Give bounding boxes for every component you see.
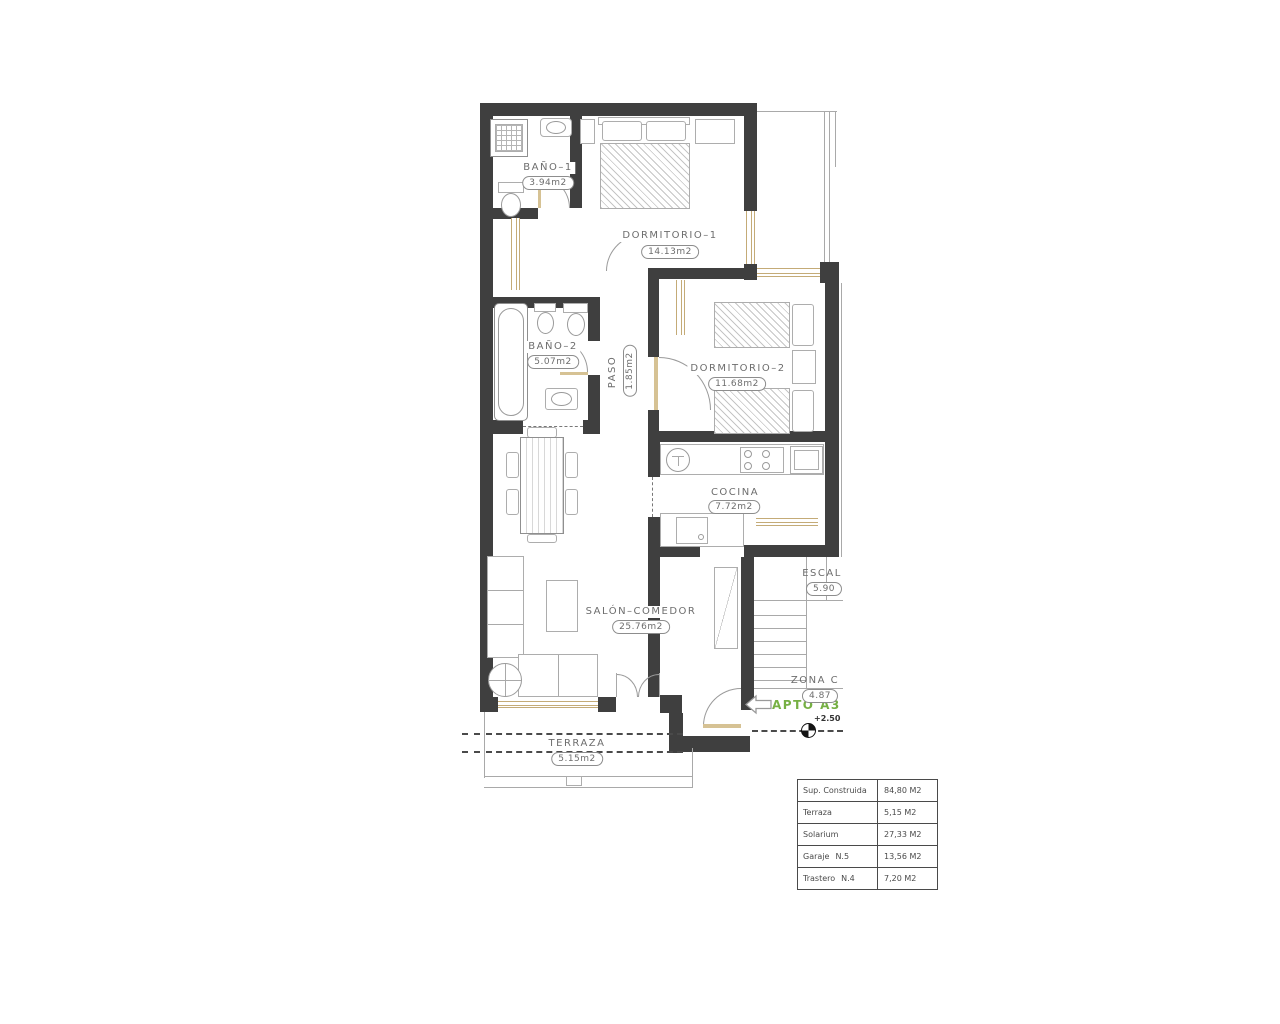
row-value: 84,80 M2 [878, 786, 937, 795]
room-label-zona-comun: ZONA C [788, 675, 842, 687]
level-marker-icon [801, 723, 816, 738]
row-label: Solarium [803, 830, 838, 839]
chair [506, 489, 519, 515]
table-row: Sup. Construida 84,80 M2 [798, 780, 937, 802]
bidet [534, 303, 556, 312]
dashed-boundary [652, 477, 653, 517]
dishwasher-dial [698, 534, 704, 540]
sink-bowl [551, 392, 572, 406]
table-row: TrasteroN.4 7,20 M2 [798, 868, 937, 889]
door-leaf [659, 673, 660, 697]
apto-arrow-icon [745, 694, 772, 715]
kitchen-hatch-window [756, 518, 818, 526]
area-badge-cocina: 7.72m2 [708, 500, 760, 514]
table-row: GarajeN.5 13,56 M2 [798, 846, 937, 868]
window [757, 268, 820, 277]
area-badge-salon: 25.76m2 [612, 620, 670, 634]
context-line [824, 112, 825, 262]
nightstand [792, 350, 816, 384]
sofa-cushion-line [488, 624, 523, 625]
wall-segment [480, 103, 757, 116]
area-badge-dormitorio-2: 11.68m2 [708, 377, 766, 391]
terrace-railing [484, 712, 485, 778]
single-bed [714, 302, 790, 348]
coffee-table [546, 580, 578, 632]
wall-segment [648, 442, 660, 477]
sofa [487, 556, 524, 658]
pillow [602, 121, 642, 141]
window [746, 211, 755, 264]
stair-tread [754, 628, 806, 629]
room-label-paso: PASO [607, 353, 619, 391]
room-label-banyo-2: BAÑO–2 [525, 341, 580, 353]
row-value: 5,15 M2 [878, 808, 937, 817]
chair [506, 452, 519, 478]
context-line [757, 111, 837, 112]
wall-segment [493, 420, 523, 434]
burner [744, 462, 752, 470]
floor-plan-canvas: +2.50 APTO A3 BAÑO–1 3.94m2 DORMITORIO–1… [0, 0, 1280, 1024]
wall-segment [744, 264, 757, 280]
row-label: Sup. Construida [803, 786, 867, 795]
burner [744, 450, 752, 458]
stair-tread [754, 667, 806, 668]
door-arc [638, 674, 659, 697]
wall-segment [598, 697, 616, 712]
row-label: Terraza [803, 808, 832, 817]
area-badge-banyo-1: 3.94m2 [522, 176, 574, 190]
table-row: Solarium 27,33 M2 [798, 824, 937, 846]
single-bed [714, 388, 790, 434]
wall-segment [480, 697, 498, 712]
door-arc [617, 674, 638, 697]
bathtub-basin [498, 308, 524, 416]
area-badge-terraza: 5.15m2 [551, 752, 603, 766]
row-value: 7,20 M2 [878, 874, 937, 883]
wall-segment [583, 420, 600, 434]
sofa-cushion-line [488, 590, 523, 591]
row-unit: N.4 [841, 874, 855, 883]
row-value: 27,33 M2 [878, 830, 937, 839]
wall-segment [744, 545, 839, 557]
wall-segment [820, 262, 839, 283]
dresser [695, 119, 735, 144]
context-line [829, 112, 830, 262]
toilet-bowl [501, 193, 521, 217]
stair-tread [754, 641, 806, 642]
area-badge-escalera: 5.90 [806, 582, 842, 596]
terrace-dashed-line [486, 733, 683, 735]
terrace-railing [484, 776, 693, 777]
fridge-inner [794, 450, 819, 470]
table-row: Terraza 5,15 M2 [798, 802, 937, 824]
shower-tray [495, 124, 523, 152]
wall-segment [588, 297, 600, 341]
room-label-cocina: COCINA [708, 487, 762, 499]
dishwasher [676, 517, 708, 544]
terrace-dashed-line [462, 751, 480, 753]
door-leaf [560, 372, 588, 375]
pillow [792, 390, 814, 432]
entry-door-leaf [703, 724, 741, 728]
area-badge-dormitorio-1: 14.13m2 [641, 245, 699, 259]
room-label-banyo-1: BAÑO–1 [520, 162, 575, 174]
wall-segment [744, 116, 757, 211]
sofa-cushion-line [558, 655, 559, 696]
bidet-bowl [537, 312, 554, 334]
dining-table [520, 437, 564, 534]
entry-door-arc [703, 688, 741, 726]
room-label-salon: SALÓN–COMEDOR [583, 606, 700, 618]
room-label-terraza: TERRAZA [546, 738, 609, 750]
door-leaf [654, 357, 658, 410]
row-unit: N.5 [835, 852, 849, 861]
context-line [835, 112, 836, 167]
toilet-bowl [567, 313, 585, 336]
room-label-escalera: ESCAL [799, 568, 845, 580]
burner [762, 450, 770, 458]
wall-segment [660, 695, 682, 713]
stair-tread [754, 654, 806, 655]
room-label-dormitorio-2: DORMITORIO–2 [687, 363, 788, 375]
toilet [563, 303, 588, 313]
row-value: 13,56 M2 [878, 852, 937, 861]
nightstand [580, 119, 595, 144]
wardrobe [511, 218, 520, 290]
side-table-cross [505, 664, 506, 696]
chair [527, 534, 557, 543]
room-label-dormitorio-1: DORMITORIO–1 [619, 230, 720, 242]
chair [565, 489, 578, 515]
wall-segment [741, 557, 754, 690]
wall-segment [825, 283, 839, 545]
chair [565, 452, 578, 478]
pillow [646, 121, 686, 141]
window [498, 701, 598, 708]
terrace-railing [692, 748, 693, 788]
area-badge-paso: 1.85m2 [623, 345, 637, 397]
wall-segment [648, 279, 659, 357]
sink-bowl [546, 121, 566, 134]
wall-segment [683, 736, 750, 752]
stair-edge [754, 600, 843, 601]
wall-segment [648, 268, 744, 279]
kitchen-tap [678, 456, 679, 466]
row-label: Garaje [803, 852, 829, 861]
stair-tread [754, 615, 806, 616]
burner [762, 462, 770, 470]
hall-closet [714, 567, 738, 649]
terrace-post [566, 776, 582, 786]
level-dashed-line [752, 730, 843, 732]
wardrobe [676, 280, 685, 335]
double-bed [600, 143, 690, 209]
summary-table: Sup. Construida 84,80 M2 Terraza 5,15 M2… [797, 779, 938, 890]
terrace-dashed-line [462, 733, 480, 735]
pillow [792, 304, 814, 346]
terrace-railing [484, 787, 693, 788]
context-line [841, 283, 842, 557]
area-badge-zona-comun: 4.87 [802, 689, 838, 703]
toilet [498, 182, 524, 193]
area-badge-banyo-2: 5.07m2 [527, 355, 579, 369]
row-label: Trastero [803, 874, 835, 883]
level-value: +2.50 [814, 714, 840, 723]
